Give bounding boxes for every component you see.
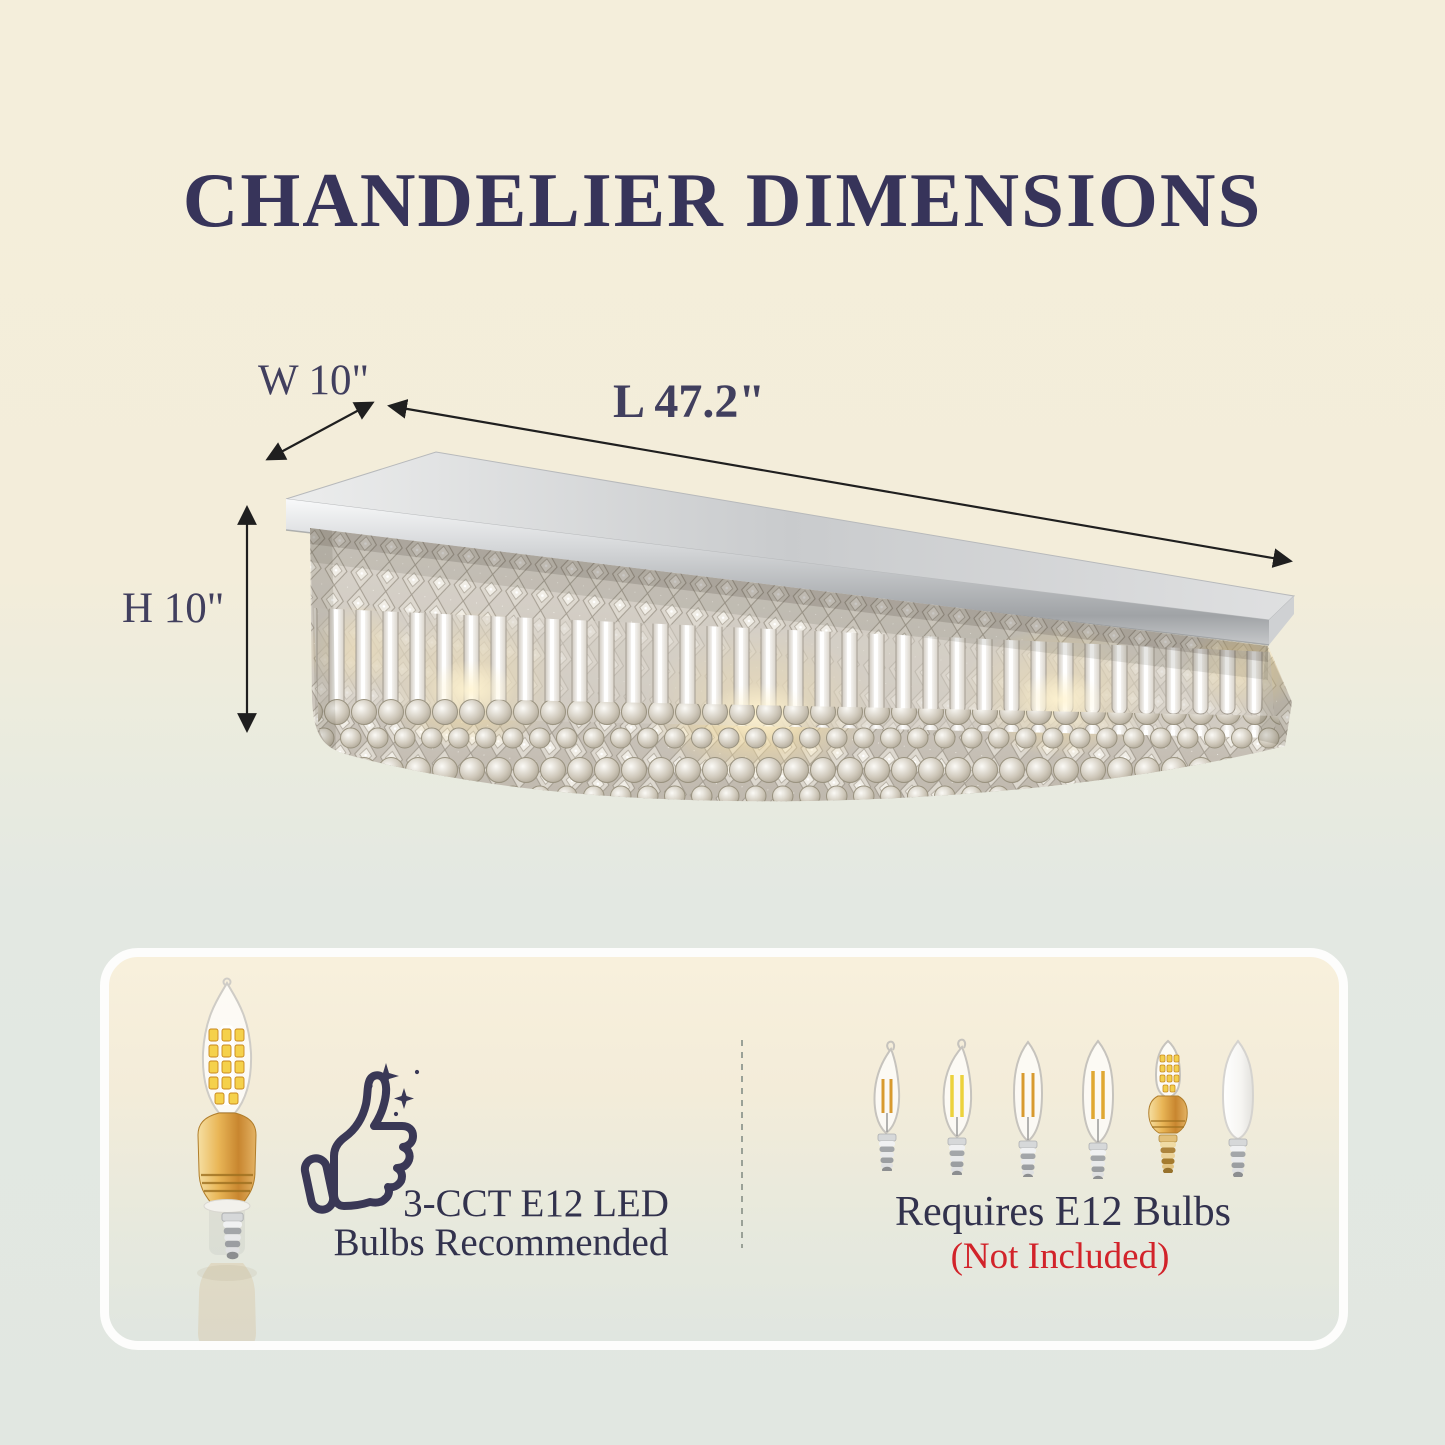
height-dimension-label: H 10" [122, 584, 224, 633]
sparkle-icon [367, 1063, 419, 1116]
frosted-bulb-icon [1207, 1037, 1269, 1177]
width-dimension-label: W 10" [258, 356, 369, 405]
page-title: CHANDELIER DIMENSIONS [0, 156, 1445, 245]
width-arrow [268, 403, 372, 459]
torpedo-bulb-icon [997, 1037, 1059, 1177]
gold-led-candle-bulb-image [165, 973, 285, 1350]
length-dimension-label: L 47.2" [613, 374, 765, 429]
requires-bulbs-text: Requires E12 Bulbs [895, 1188, 1231, 1236]
torpedo-bulb-large-icon [1067, 1037, 1129, 1179]
gold-led-bulb-icon [1137, 1037, 1199, 1173]
infographic-root: CHANDELIER DIMENSIONS W 10" L 47.2" H 10… [0, 0, 1445, 1445]
flame-tip-bulb-icon [857, 1037, 919, 1171]
e12-bulb-lineup [857, 1037, 1277, 1173]
recommended-bulb-text-line2: Bulbs Recommended [334, 1220, 669, 1265]
dashed-divider [741, 1040, 743, 1248]
flame-tip-bulb-large-icon [927, 1037, 989, 1175]
chandelier-image [280, 452, 1310, 820]
not-included-text: (Not Included) [951, 1235, 1170, 1278]
bulb-info-card: 3-CCT E12 LED Bulbs Recommended [100, 948, 1348, 1350]
